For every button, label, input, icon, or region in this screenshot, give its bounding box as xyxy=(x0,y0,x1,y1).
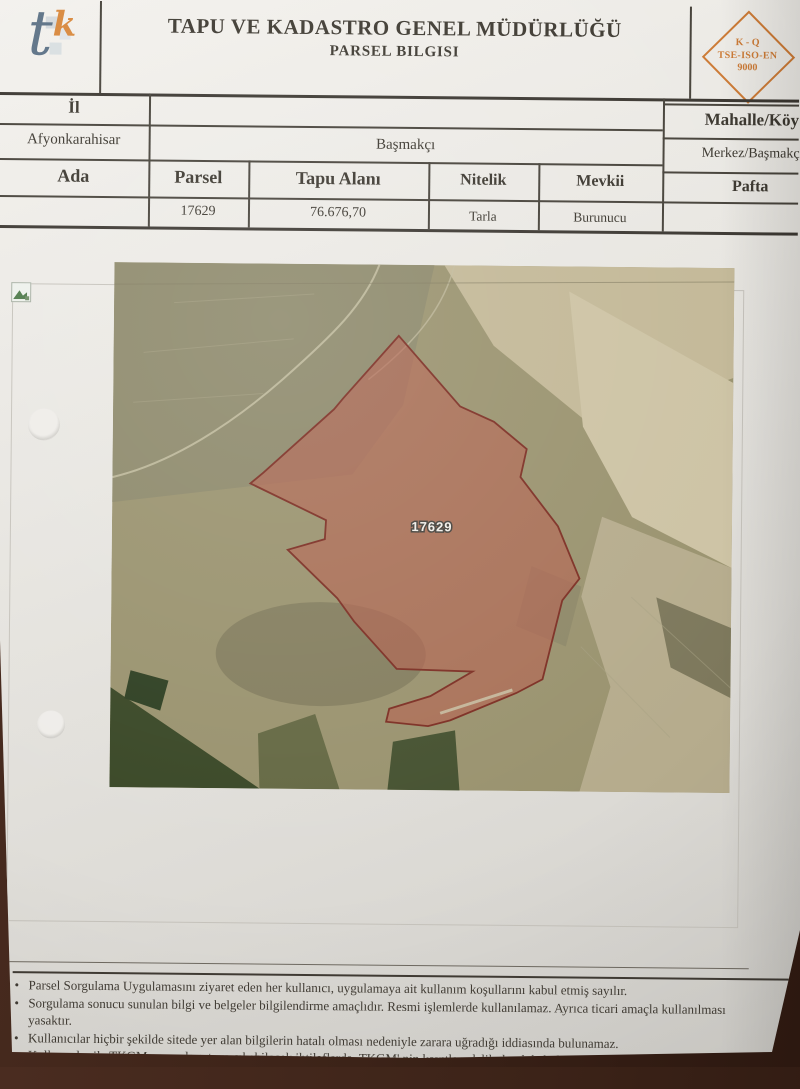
table-line xyxy=(663,103,799,106)
disclaimer-item: Tüm Hakları Saklıdır. xyxy=(10,1064,740,1089)
placeholder-dot-glyph xyxy=(25,296,29,300)
logo-letter-t: t xyxy=(27,0,53,70)
value-tapu-alani: 76.676,70 xyxy=(248,204,428,222)
image-placeholder-icon xyxy=(11,282,31,302)
table-line xyxy=(662,98,665,231)
col-header-parsel: Parsel xyxy=(148,166,248,188)
value-pafta xyxy=(662,210,798,211)
parcel-number-label: 17629 xyxy=(411,519,452,534)
value-parsel: 17629 xyxy=(148,203,248,220)
value-ilce: Başmakçı xyxy=(149,134,663,156)
table-line xyxy=(689,7,691,99)
tkgm-logo: t k xyxy=(19,2,90,89)
badge-line3: 9000 xyxy=(737,62,757,75)
document-subtitle: PARSEL BILGISI xyxy=(109,41,679,63)
label-il: İl xyxy=(0,97,149,118)
disclaimer-list: Parsel Sorgulama Uygulamasını ziyaret ed… xyxy=(10,976,741,1088)
page-content: t k TAPU VE KADASTRO GENEL MÜDÜRLÜĞÜ PAR… xyxy=(0,0,800,1075)
value-mevkii: Burunucu xyxy=(538,209,662,226)
logo-letter-k: k xyxy=(53,5,77,45)
satellite-map-image: 17629 xyxy=(109,262,734,793)
badge-line2: TSE-ISO-EN xyxy=(718,50,778,63)
col-header-nitelik: Nitelik xyxy=(428,171,538,190)
table-line xyxy=(0,123,663,131)
table-line xyxy=(663,137,799,140)
table-line xyxy=(0,158,662,166)
value-mahalle-koy: Merkez/Başmakçı xyxy=(668,145,800,163)
table-line xyxy=(99,1,101,93)
value-ada xyxy=(0,202,148,203)
col-header-pafta: Pafta xyxy=(662,177,800,197)
value-nitelik: Tarla xyxy=(428,208,538,225)
hole-punch-mark xyxy=(37,710,65,738)
hole-punch-mark xyxy=(28,408,60,440)
value-il: Afyonkarahisar xyxy=(0,131,149,149)
col-header-mevkii: Mevkii xyxy=(538,172,662,191)
table-line xyxy=(0,195,798,204)
badge-line1: K - Q xyxy=(736,37,760,50)
table-line xyxy=(0,225,798,235)
col-header-ada: Ada xyxy=(0,165,148,187)
document-page: t k TAPU VE KADASTRO GENEL MÜDÜRLÜĞÜ PAR… xyxy=(0,0,800,1067)
document-title: TAPU VE KADASTRO GENEL MÜDÜRLÜĞÜ xyxy=(110,13,680,43)
tse-iso-badge-text: K - Q TSE-ISO-EN 9000 xyxy=(699,27,796,86)
col-header-tapu-alani: Tapu Alanı xyxy=(248,167,428,190)
table-line xyxy=(662,171,798,174)
footer-separator-thin xyxy=(9,961,749,969)
label-mahalle-koy: Mahalle/Köy xyxy=(667,109,800,131)
